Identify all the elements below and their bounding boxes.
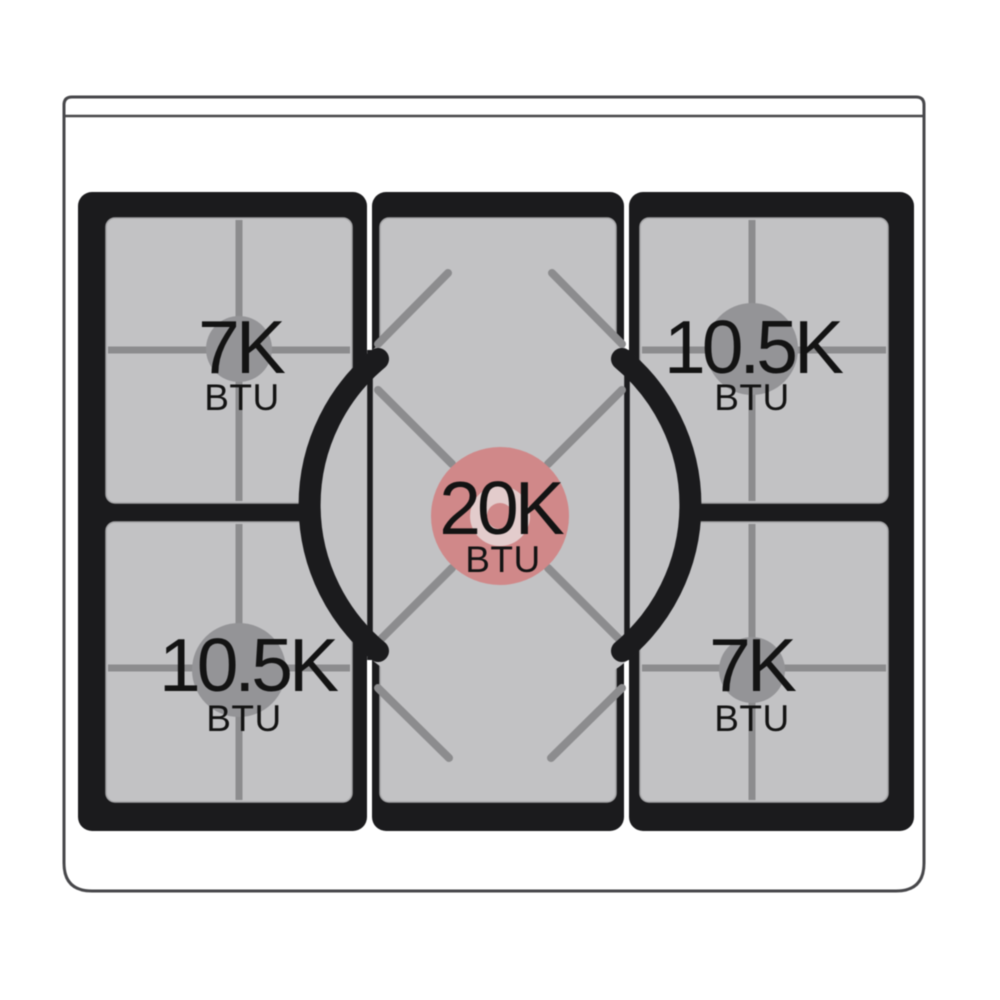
burner-unit-bottom-left: BTU xyxy=(206,698,282,739)
burner-power-bottom-left: 10.5K xyxy=(159,623,339,707)
burner-unit-center: BTU xyxy=(465,539,541,580)
cooktop-diagram: 7K BTU 10.5K BTU 20K BTU 10.5K BTU 7K BT… xyxy=(0,0,1000,1000)
divider-seam-right xyxy=(624,350,630,660)
burner-power-center: 20K xyxy=(439,466,564,550)
divider-seam-left xyxy=(367,350,373,660)
burner-unit-top-left: BTU xyxy=(204,377,280,418)
burner-unit-top-right: BTU xyxy=(714,377,790,418)
cooktop-drawing: 7K BTU 10.5K BTU 20K BTU 10.5K BTU 7K BT… xyxy=(0,0,1000,1000)
burner-unit-bottom-right: BTU xyxy=(714,698,790,739)
burner-power-bottom-right: 7K xyxy=(709,623,797,707)
